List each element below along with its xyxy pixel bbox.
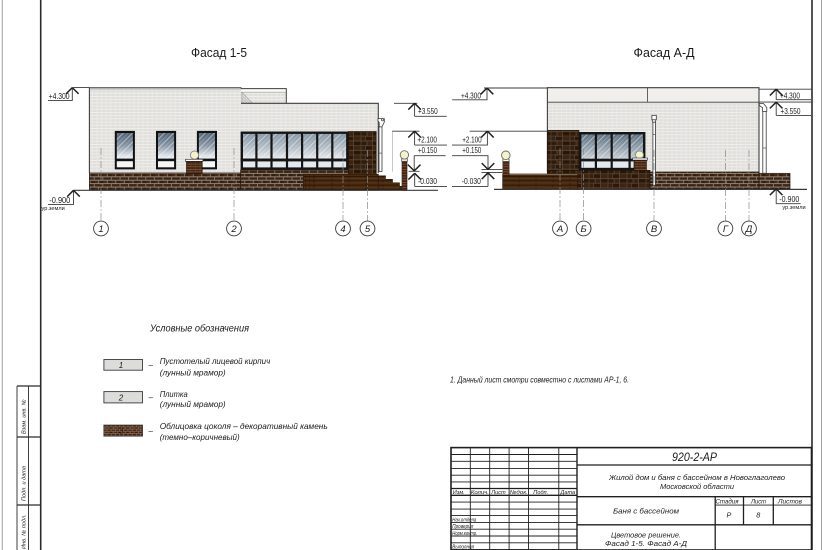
svg-text:А: А [556,224,563,235]
svg-text:Баня с бассейном: Баня с бассейном [613,506,679,515]
svg-text:Инв. № подл.: Инв. № подл. [22,514,28,549]
svg-text:(темно–коричневый): (темно–коричневый) [160,432,240,442]
svg-text:Плитка: Плитка [160,389,188,399]
svg-text:–: – [149,361,154,370]
svg-text:Д: Д [745,224,753,235]
svg-text:(лунный мрамор): (лунный мрамор) [160,367,226,377]
svg-text:Изм.: Изм. [453,490,465,496]
svg-text:Норм.контр.: Норм.контр. [452,531,477,537]
svg-text:Фасад А-Д: Фасад А-Д [634,46,696,60]
svg-text:+2.100: +2.100 [417,135,437,144]
svg-text:Условные обозначения: Условные обозначения [149,323,250,335]
svg-text:Пустотелый лицевой кирпич: Пустотелый лицевой кирпич [160,356,271,366]
svg-text:+2.100: +2.100 [462,135,482,144]
svg-text:Выполнил: Выполнил [452,545,475,550]
svg-text:ур.земли: ур.земли [782,205,805,211]
svg-text:+3.550: +3.550 [781,107,801,116]
svg-text:8: 8 [756,511,760,520]
svg-text:-0.900: -0.900 [779,195,799,204]
svg-text:Московской области: Московской области [660,482,734,491]
svg-text:Нач.отдела: Нач.отдела [452,517,476,523]
svg-text:5: 5 [365,224,371,235]
svg-text:Дата: Дата [559,490,575,496]
svg-text:+4.300: +4.300 [461,91,481,100]
svg-text:920-2-АР: 920-2-АР [672,452,717,464]
svg-text:+4.300: +4.300 [780,91,800,100]
svg-text:Р: Р [727,511,732,520]
svg-text:4: 4 [340,224,345,235]
svg-text:Подп. и дата: Подп. и дата [22,466,28,501]
svg-text:№док.: №док. [510,490,528,496]
svg-text:+3.550: +3.550 [418,107,438,116]
svg-text:В: В [651,224,658,235]
svg-text:+0.150: +0.150 [418,146,437,155]
svg-text:–: – [149,426,154,435]
svg-text:+0.150: +0.150 [462,146,481,155]
svg-text:-0.030: -0.030 [418,177,437,186]
svg-text:1: 1 [98,224,103,235]
svg-text:Жилой дом и баня с бассейном в: Жилой дом и баня с бассейном в Новоглаго… [608,473,785,482]
svg-text:+4.300: +4.300 [49,92,70,101]
svg-text:-0.900: -0.900 [49,196,71,205]
svg-text:Взам. инв. №: Взам. инв. № [22,399,28,434]
svg-text:–: – [149,393,154,402]
svg-text:Подп.: Подп. [533,490,548,496]
svg-text:Г: Г [723,224,729,235]
svg-text:Колич.: Колич. [471,490,489,496]
svg-text:1. Данный лист смотри совместн: 1. Данный лист смотри совместно с листам… [450,376,629,385]
svg-text:Лист: Лист [750,499,767,506]
svg-text:Проверил: Проверил [452,524,474,530]
svg-text:3: 3 [119,427,124,436]
svg-text:1: 1 [119,361,123,370]
svg-text:(лунный мрамор): (лунный мрамор) [160,399,226,409]
svg-text:Б: Б [581,224,587,235]
svg-text:Лист: Лист [490,490,506,496]
svg-text:Листов: Листов [777,499,803,506]
svg-text:-0.030: -0.030 [462,177,481,186]
svg-text:Облицовка цоколя – декоративны: Облицовка цоколя – декоративный камень [160,421,328,431]
svg-text:ур.земли: ур.земли [42,206,65,212]
svg-text:Стадия: Стадия [716,498,740,506]
svg-text:2: 2 [230,224,237,235]
svg-text:Фасад 1-5. Фасад А-Д: Фасад 1-5. Фасад А-Д [605,539,687,548]
svg-text:2: 2 [118,393,124,402]
svg-text:Фасад 1-5: Фасад 1-5 [191,46,247,60]
